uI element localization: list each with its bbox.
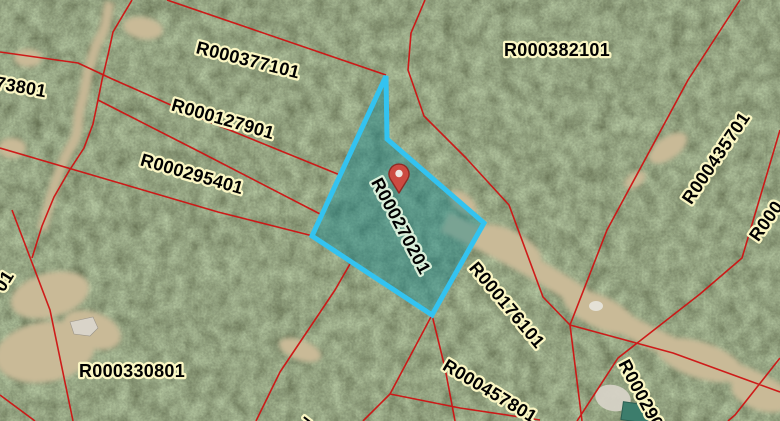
parcel-label: R000330801 [79, 361, 185, 381]
vehicle [589, 301, 603, 311]
parcel-label: R000382101 [504, 40, 610, 60]
map-viewport[interactable]: 73801 R000377101 R000127901 R000295401 R… [0, 0, 780, 421]
parcel-map: 73801 R000377101 R000127901 R000295401 R… [0, 0, 780, 421]
pin-hole [395, 170, 402, 177]
